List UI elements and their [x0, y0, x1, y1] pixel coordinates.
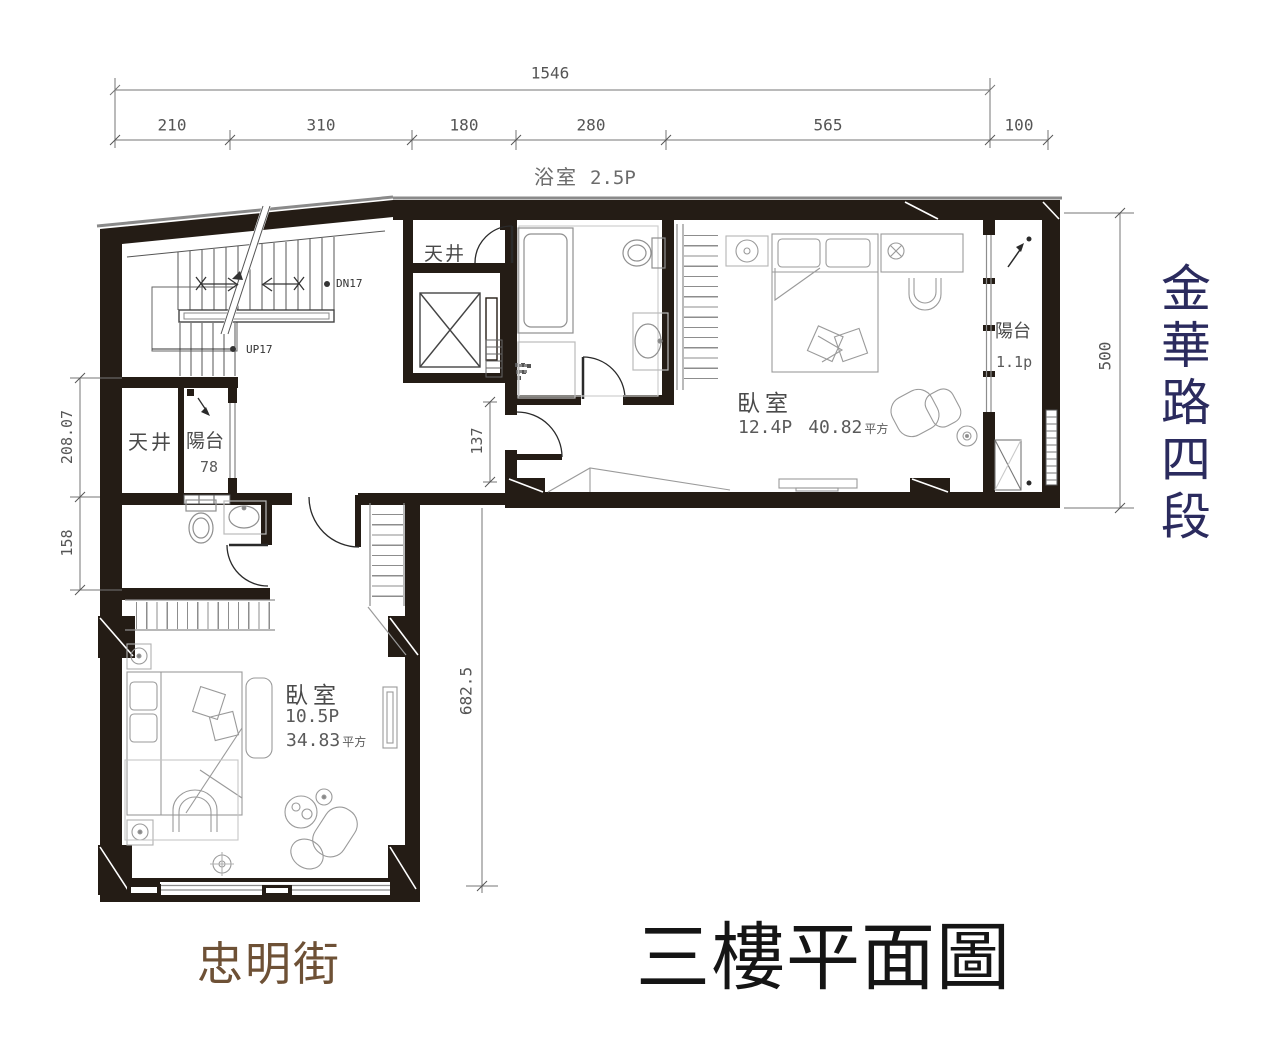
- dim-segment-4: 280: [577, 116, 606, 135]
- dim-lower-wing: 682.5: [457, 667, 476, 715]
- closet-south-bedroom-side: [372, 505, 403, 605]
- closet-south-bedroom-top: [127, 602, 273, 629]
- balcony-east-name: 陽台: [995, 317, 1031, 343]
- dim-segment-6: 100: [1005, 116, 1034, 135]
- doors: [187, 226, 1032, 586]
- bedroom-south-name: 臥室: [285, 676, 341, 710]
- floor-plan-page: 1546 210 310 180 280 565 100 208.07 158 …: [0, 0, 1271, 1063]
- bath-main-label: 浴室 2.5P: [534, 161, 636, 190]
- bedroom-south-area: 34.83: [286, 730, 340, 751]
- bathroom-second-fixtures: [186, 500, 266, 543]
- balcony-nw-name: 陽台: [186, 426, 224, 453]
- stair-down-label: DN17: [336, 277, 363, 290]
- lightwell-nw-label: 天井: [128, 426, 174, 455]
- bedroom-east-area-unit: 平方: [864, 420, 888, 437]
- dim-left-lower: 158: [58, 529, 76, 556]
- dim-total-width: 1546: [531, 64, 570, 83]
- page-title: 三樓平面圖: [636, 898, 1011, 1005]
- street-name-south: 忠明街: [197, 928, 341, 994]
- bedroom-south-furniture: [125, 644, 397, 876]
- lightwell-core-label: 天井: [424, 239, 466, 266]
- bedroom-east-furniture: [548, 234, 1021, 492]
- balcony-nw-size: 78: [200, 458, 218, 476]
- bathroom-main-fixtures: [518, 226, 668, 398]
- windows: [127, 235, 1057, 896]
- dim-left-upper: 208.07: [58, 410, 76, 464]
- bedroom-south-area-unit: 平方: [342, 733, 366, 750]
- stair-up-label: UP17: [246, 343, 273, 356]
- dim-corridor: 137: [468, 427, 486, 454]
- street-name-east: 金華路四段: [1146, 262, 1218, 547]
- bath-main-size: 2.5P: [590, 167, 636, 189]
- dim-segment-2: 310: [307, 116, 336, 135]
- dim-segment-5: 565: [814, 116, 843, 135]
- bath-main-name: 浴室: [534, 161, 578, 190]
- bedroom-south-area-row: 34.83 平方: [286, 730, 366, 751]
- bedroom-east-size: 12.4P: [738, 417, 792, 438]
- bedroom-east-details: 12.4P 40.82 平方: [738, 417, 888, 438]
- bedroom-east-area: 40.82: [808, 417, 862, 438]
- dim-segment-3: 180: [450, 116, 479, 135]
- dim-segment-1: 210: [158, 116, 187, 135]
- wardrobe-east-bedroom: [684, 226, 718, 388]
- dim-right-side: 500: [1096, 342, 1115, 371]
- balcony-east-size: 1.1p: [996, 353, 1032, 371]
- bedroom-south-size: 10.5P: [285, 706, 339, 727]
- bedroom-east-name: 臥室: [737, 384, 793, 418]
